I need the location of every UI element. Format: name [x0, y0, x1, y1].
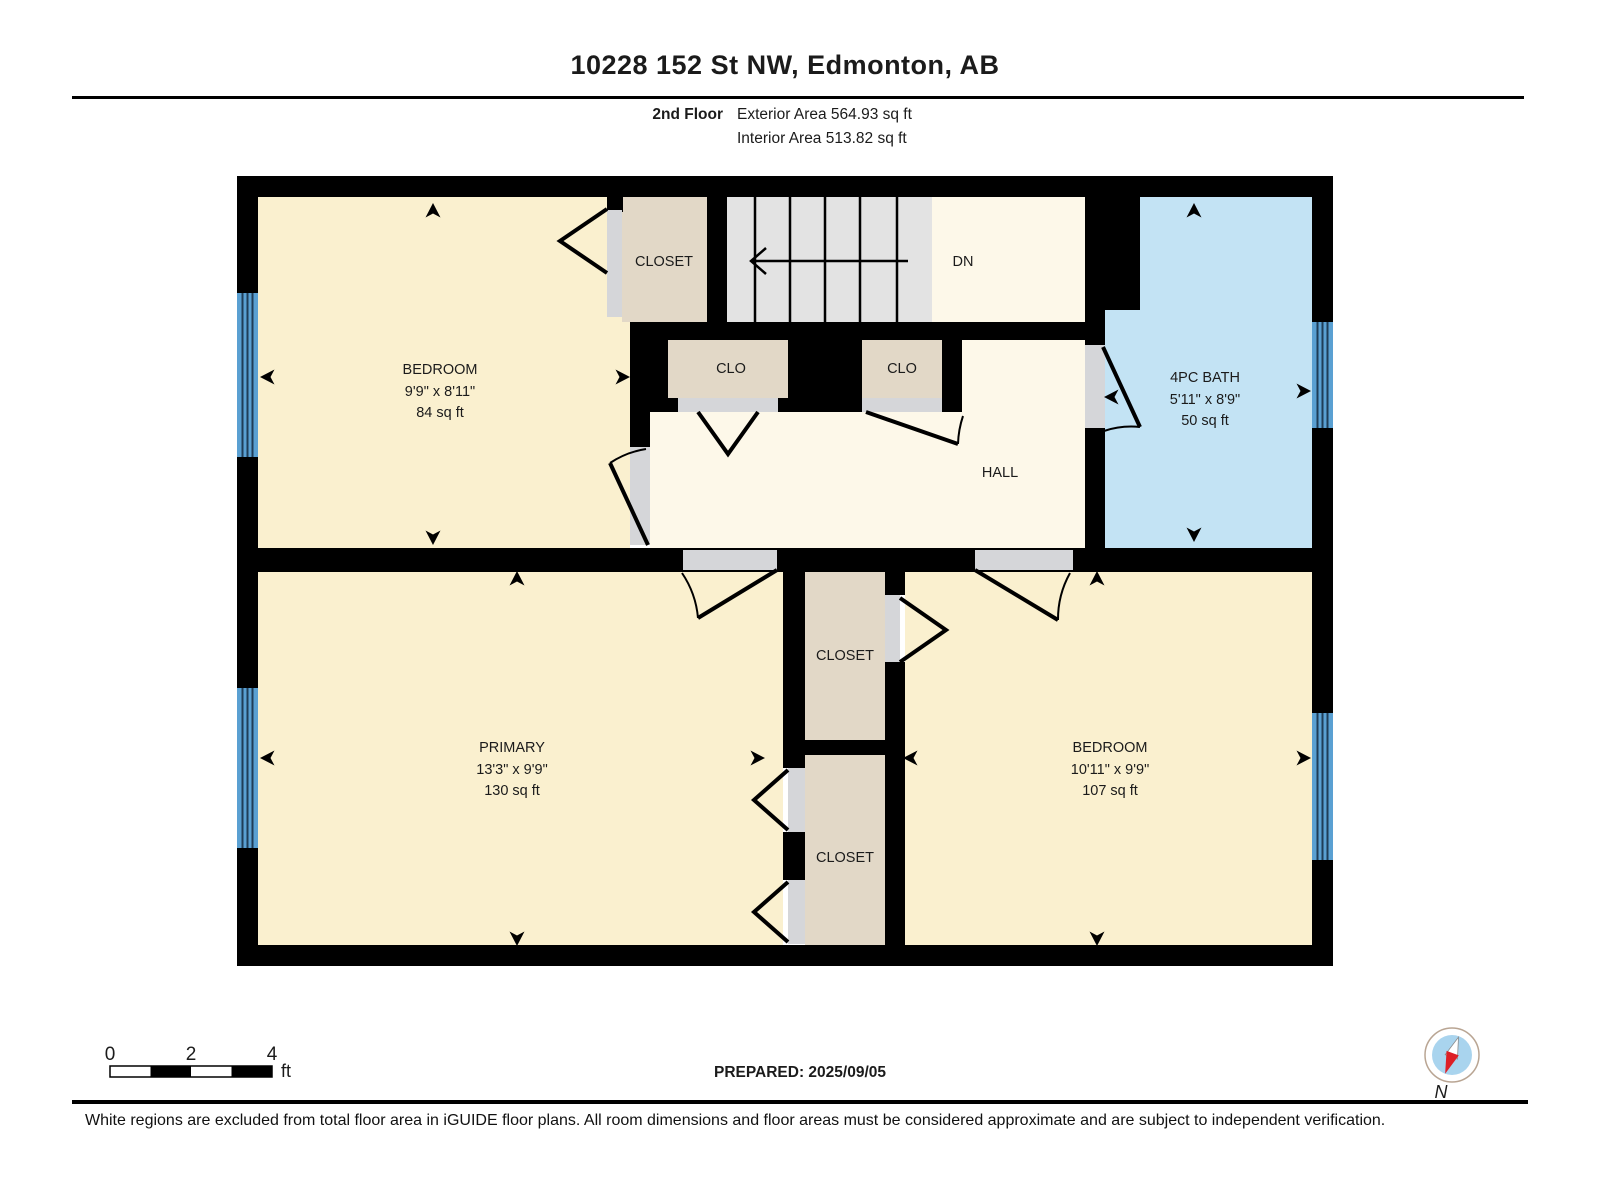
room-name: CLOSET: [816, 648, 874, 664]
door-threshold: [1085, 345, 1105, 428]
room-name: CLOSET: [635, 254, 693, 270]
scale-unit-label: ft: [281, 1061, 291, 1081]
room-area: 50 sq ft: [1181, 413, 1229, 429]
footer-divider: [72, 1100, 1528, 1104]
room-area: 107 sq ft: [1082, 783, 1138, 799]
scale-bar-segment: [232, 1066, 273, 1077]
wall-segment: [1085, 197, 1140, 310]
room-dimensions: 5'11" x 8'9": [1170, 392, 1240, 408]
wall-segment: [885, 755, 905, 945]
wall-segment: [707, 197, 727, 322]
wall-segment: [788, 340, 862, 412]
scale-tick-label: 4: [267, 1044, 278, 1065]
room-name: BEDROOM: [403, 362, 478, 378]
door-threshold: [788, 768, 805, 832]
wall-segment: [650, 322, 1085, 340]
wall-segment: [783, 740, 905, 755]
wall-segment: [885, 572, 905, 595]
room-name: 4PC BATH: [1170, 370, 1240, 386]
wall-segment: [885, 662, 905, 740]
room-name: CLOSET: [816, 850, 874, 866]
stairwell: [727, 197, 932, 322]
window: [237, 688, 258, 848]
wall-segment: [778, 398, 788, 412]
scale-tick-label: 0: [105, 1044, 116, 1065]
room-name: BEDROOM: [1073, 740, 1148, 756]
window: [237, 293, 258, 457]
floorplan-drawing: BEDROOM 9'9" x 8'11" 84 sq ft CLOSET DN …: [0, 0, 1600, 1200]
primary-room: [258, 572, 783, 945]
door-threshold: [862, 398, 942, 412]
scale-bar-segment: [151, 1066, 192, 1077]
room-area: 84 sq ft: [416, 405, 464, 421]
wall-segment: [783, 832, 805, 880]
room-name: CLO: [716, 361, 746, 377]
door-threshold: [885, 595, 900, 662]
compass-north-label: N: [1435, 1082, 1449, 1102]
room-dimensions: 9'9" x 8'11": [405, 384, 475, 400]
scale-tick-label: 2: [186, 1044, 197, 1065]
wall-segment: [607, 176, 623, 212]
wall-segment: [237, 945, 1333, 966]
room-name: HALL: [982, 465, 1018, 481]
scale-bar: 0 2 4 ft: [105, 1044, 291, 1081]
room-area: 130 sq ft: [484, 783, 540, 799]
wall-segment: [1085, 428, 1105, 548]
window: [1312, 713, 1333, 860]
room-name: PRIMARY: [479, 740, 545, 756]
wall-segment: [237, 548, 1333, 572]
disclaimer-text: White regions are excluded from total fl…: [85, 1112, 1505, 1130]
wall-segment: [783, 572, 805, 768]
wall-segment: [668, 398, 678, 412]
door-threshold: [975, 550, 1073, 570]
bedroom-bottom-right-room: [905, 572, 1312, 945]
floorplan-page: 10228 152 St NW, Edmonton, AB 2nd Floor …: [0, 0, 1600, 1200]
room-name: CLO: [887, 361, 917, 377]
wall-segment: [650, 340, 668, 412]
window: [1312, 322, 1333, 428]
room-dimensions: 13'3" x 9'9": [476, 762, 547, 778]
compass-icon: N: [1425, 1028, 1479, 1102]
door-threshold: [607, 210, 622, 317]
wall-segment: [1085, 310, 1105, 345]
door-threshold: [788, 880, 805, 944]
stairs-direction-label: DN: [953, 254, 974, 270]
door-threshold: [683, 550, 777, 570]
prepared-date: PREPARED: 2025/09/05: [714, 1064, 886, 1081]
wall-segment: [237, 176, 1333, 197]
room-dimensions: 10'11" x 9'9": [1071, 762, 1149, 778]
wall-segment: [942, 340, 962, 412]
wall-segment: [630, 322, 650, 447]
door-threshold: [678, 398, 778, 412]
hall-main-area: [650, 412, 1085, 548]
